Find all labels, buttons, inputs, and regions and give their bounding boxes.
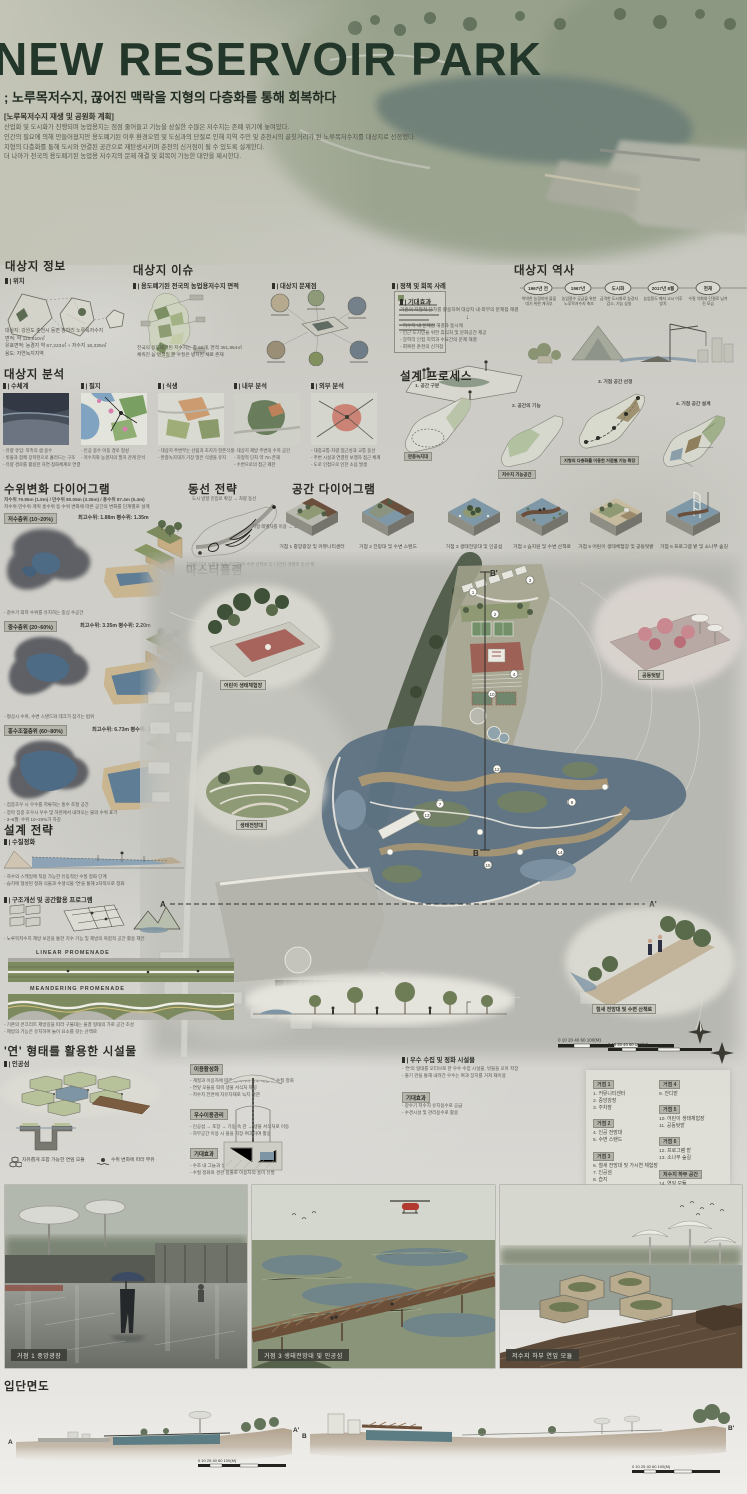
water-badge-1: 저수층위 (10~20%) (4, 513, 57, 524)
legend-item: 2. 중앙광장 (593, 1098, 651, 1105)
legend-item: 7. 인공섬 (593, 1170, 651, 1177)
svg-text:1: 1 (472, 590, 475, 595)
circulation-note-1: 도시 방향 진입로 확장 → 차량 동선 (192, 496, 256, 503)
svg-text:현재: 현재 (704, 285, 712, 292)
water-purification-bullets: - 하수의 스케일에 적용 가능한 유동적인 수질 정화 단계- 습지에 형성된… (4, 874, 194, 888)
history-caption: 척박한 농경지에 물을 대기 위한 계곡부 (520, 296, 558, 306)
project-type-label: [노루목저수지 재생 및 공원화 계획] (4, 111, 114, 122)
render-caption: 거점 1 중앙광장 (11, 1349, 67, 1361)
analysis-bullet: - 대상지 주변부는 산림과 초지가 현존식생 (158, 448, 232, 455)
legend-item: 3. 주차장 (593, 1105, 651, 1112)
svg-text:도시화: 도시화 (612, 285, 625, 292)
render-lotus-modules-photo: 저수지 하부 연잎 모듈 (500, 1185, 742, 1368)
purification-section-diagram (2, 845, 186, 871)
issue-note: 전국의 용도폐기된 저수지는 총 58개, 면적 361,864㎡ (137, 344, 267, 351)
water-summary: 저수위 79.85m (1.8m) / 만수위 80.05m (3.35m) /… (4, 496, 184, 503)
analysis-panel-parcel: | 필지 - 인공 용수 이동 경로 형성- 저수지와 농경지의 필지 관계 분… (81, 381, 155, 462)
site-info-details: 대상지: 강원도 춘천시 동면 장학리 노루목저수지면적: 약 115,610㎡… (5, 328, 130, 358)
analysis-bullet: - 빗물과 함께 장학천으로 흘러드는 구조 (3, 455, 77, 462)
expectation-intro: 기존의 지형적 단차를 활용하여 대상지 내·외부의 문제점 해결 (400, 306, 535, 313)
expectation-line: - 장학리 인접 지역과 수요간의 문제 해결 (400, 336, 540, 343)
rain-bullets: - '연'의 형태를 모티브로 한 우수 수집 시설물, 빗물을 모아 저장- … (402, 1066, 577, 1080)
strategy-bullet: - 습지에 형성된 정화 식물과 수생식물 '연'을 통해 2차적으로 정화 (4, 881, 194, 888)
island-section-diagram (16, 1120, 76, 1154)
legend-group-title: 거점 4 (659, 1080, 680, 1089)
legend-item: 8. 습지 (593, 1177, 651, 1184)
issue-note: 채워진 늪 면적일 뿐 수질은 방치된 채로 존재 (137, 351, 267, 358)
section-b-drawing: B B' 0 10 25 40 60 100(M) (302, 1392, 738, 1488)
section-analysis: 대상지 분석 (4, 366, 65, 382)
analysis-bullet: - 인공 용수 이동 경로 형성 (81, 448, 155, 455)
water-summary2: 저수위·만수위·계획 홍수위 등 수위 변화에 따른 공간의 변화를 단계별로 … (4, 503, 184, 510)
analysis-panel-external: | 외부 분석 - 대중교통·차량 접근성과 교통 동선- 주변 시설과 연결된… (311, 381, 385, 468)
legend-item: 11. 공동텃밭 (659, 1123, 717, 1130)
sub-expectation: | 기대효과 (405, 299, 432, 306)
island-module-axon (0, 1066, 172, 1118)
history-caption: 급격한 도시화로 농경지 감소, 기능 상실 (600, 296, 638, 306)
rain-effect-badge: 기대효과 (402, 1092, 430, 1103)
svg-text:0 10 20 40 60 1: 0 10 20 40 60 100(M) (608, 1042, 649, 1047)
meandering-promenade-label: MEANDERING PROMENADE (30, 986, 125, 992)
rain-collector-diagram: 0 10 20 40 60 100(M) (590, 1040, 740, 1068)
legend-item: 1. 커뮤니티센터 (593, 1091, 651, 1098)
section-lotus: '연' 형태를 활용한 시설물 (4, 1043, 137, 1059)
legend-group-title: 거점 1 (593, 1080, 614, 1089)
legend-group-title: 거점 2 (593, 1119, 614, 1128)
scale-strip: 0 10 20 40 60 100(M) (608, 1042, 712, 1051)
iso-caption-6: 거점 6 프로그램 밭 및 소나무 숲길 (652, 545, 736, 551)
svg-text:2017년 8월: 2017년 8월 (652, 285, 675, 292)
vignette-playground (190, 585, 330, 689)
section-strategy: 설계 전략 (4, 822, 54, 838)
site-info-line: 유효면적: 농경지 약 67,223㎡ + 저수지 18,335㎡ (5, 343, 130, 351)
process-badge: 지형의 다층화를 이용한 거점별 기능 확장 (560, 456, 639, 465)
iso-diagram-1 (284, 494, 340, 544)
svg-text:15: 15 (485, 863, 491, 868)
iso-caption-4: 거점 4 습지원 및 수변 산책로 (504, 545, 580, 551)
legend-group-title: 거점 3 (593, 1152, 614, 1161)
water-plan-1 (2, 524, 98, 610)
intro-line: 인간의 필요에 의해 만들어졌지만 용도폐기된 이후 환경오염 및 도심과의 단… (4, 133, 484, 143)
process-badge: 완충녹지대 (404, 452, 432, 461)
promenade-bullets: - 기존의 콘크리트 제방길을 따라 구불대는 물결 형태의 가로 공간 조성-… (4, 1022, 244, 1036)
strategy-bullet: - 노루목저수지 제방 보강을 통한 치수 기능 및 제방의 복합적 공간 활용… (4, 936, 239, 943)
legend-group-title: 저수지 하부 공간 (659, 1170, 702, 1179)
water-badge-3: 홍수조절층위 (60~80%) (4, 725, 67, 736)
svg-text:B: B (302, 1433, 307, 1440)
vignette-label: 철새 전망대 및 수변 산책로 (592, 1004, 656, 1014)
analysis-panel-internal: | 내부 분석 - 대상지 제방 주변의 수목 공간- 지형적 단차 약 7m … (234, 381, 308, 468)
render-wetland-photo: 거점 3 생태전망대 및 인공섬 (252, 1185, 495, 1368)
analysis-bullet: - 유량 경로를 활용한 자연 정화체계로 연결 (3, 462, 77, 469)
section-scale-bar: 0 10 25 40 60 100(M) (632, 1464, 720, 1473)
rain-bullet: - 줄기 관을 통해 내려간 우수는 여과 장치를 거쳐 재이용 (402, 1073, 577, 1080)
process-step-2 (496, 410, 578, 476)
rain-effect: - 갈수기 저수지 유지용수로 공급 (402, 1103, 577, 1110)
analysis-bullet: - 유량 유입: 북측의 샘 용수 (3, 448, 77, 455)
analysis-bullet: - 대중교통·차량 접근성과 교통 동선 (311, 448, 385, 455)
strategy-bullet: - 제방의 기능은 유지하며 놀이 요소를 갖는 산책로 (4, 1029, 244, 1036)
problem-diagram (258, 290, 376, 366)
vignette-label: 공동텃밭 (638, 670, 664, 680)
iso-caption-3: 거점 3 생태전망대 및 인공섬 (436, 545, 512, 551)
analysis-panel-water: | 수체계 - 유량 유입: 북측의 샘 용수- 빗물과 함께 장학천으로 흘러… (3, 381, 77, 468)
history-caption: 농업용수 공급을 위한 노루목저수지 축조 (560, 296, 598, 306)
legend-item: 9. 잔디밭 (659, 1091, 717, 1098)
page-title: NEW RESERVOIR PARK (0, 32, 542, 86)
render-plaza-photo: 거점 1 중앙광장 (5, 1185, 247, 1368)
umbrella-structure-diagram (218, 1062, 288, 1174)
legend-item: 10. 어린이 생태체험장 (659, 1116, 717, 1123)
expectation-line: - 저수지 내 문제점 해결과 동시에 (400, 322, 540, 329)
strategy-bullet: - 하수의 스케일에 적용 가능한 유동적인 수질 정화 단계 (4, 874, 194, 881)
site-info-line: 용도: 자연녹지지역 (5, 351, 130, 359)
render-caption: 거점 3 생태전망대 및 인공섬 (258, 1349, 349, 1361)
linear-promenade-label: LINEAR PROMENADE (36, 950, 110, 956)
module-icon-caption-2: 수위 변화에 따라 부유 (111, 1158, 155, 1164)
iso-caption-1: 거점 1 중앙광장 및 커뮤니티센터 (272, 545, 352, 551)
module-icon-1 (8, 1156, 22, 1168)
section-site-issue: 대상지 이슈 (133, 262, 194, 278)
iso-caption-2: 거점 2 전망대 및 수변 스탠드 (352, 545, 424, 551)
svg-text:1967년 전: 1967년 전 (528, 285, 548, 292)
meandering-promenade-strip (8, 994, 234, 1020)
svg-text:A: A (8, 1439, 13, 1446)
analysis-bullet: - 완충녹지대가 가장 많은 식생을 유지 (158, 455, 232, 462)
vignette-label: 생태전망대 (236, 820, 267, 830)
rain-effect: - 수경시설 및 관리용수로 활용 (402, 1110, 577, 1117)
water-plan-2 (2, 632, 98, 714)
process-badge: 저수지 기능공간 (498, 470, 536, 479)
sub-issue-problem: | 대상지 문제점 (277, 283, 317, 290)
intro-paragraph: 산업화 및 도시화가 진행되며 농업용지는 점점 줄어들고 기능을 상실한 수많… (4, 123, 484, 162)
section-a-drawing: A A' 0 10 25 40 60 100(M) (8, 1392, 300, 1478)
history-caption: 농업용도 폐지 고시 이후 방치 (642, 296, 684, 306)
subtitle: ; 노루목저수지, 끊어진 맥락을 지형의 다층화를 통해 회복하다 (4, 87, 336, 106)
svg-text:8: 8 (571, 800, 574, 805)
module-icon-2 (96, 1156, 110, 1168)
rain-effects: - 갈수기 저수지 유지용수로 공급- 수경시설 및 관리용수로 활용 (402, 1103, 577, 1117)
legend-group-title: 거점 6 (659, 1137, 680, 1146)
expectation-line: - 인근 도시민을 위한 휴식처 및 문화공간 제공 (400, 329, 540, 336)
svg-text:B': B' (490, 569, 498, 578)
svg-text:14: 14 (557, 850, 563, 855)
svg-text:12: 12 (494, 767, 500, 772)
street-section-vignette (245, 968, 515, 1028)
iso-diagram-5 (588, 494, 644, 544)
svg-text:3: 3 (529, 578, 532, 583)
process-step-label: 3. 거점 공간 선정 (598, 380, 632, 386)
analysis-panel-vegetation: | 식생 - 대상지 주변부는 산림과 초지가 현존식생- 완충녹지대가 가장 … (158, 381, 232, 462)
module-icon-caption-1: 자유롭게 조합 가능한 연잎 모듈 (22, 1158, 85, 1164)
legend-item: 4. 인공 전망대 (593, 1130, 651, 1137)
linear-promenade-strip (8, 958, 234, 982)
iso-diagram-3 (446, 494, 502, 544)
circle-lawn (470, 708, 486, 724)
process-step-4 (658, 410, 740, 476)
svg-text:10: 10 (489, 692, 495, 697)
structure-sketches (2, 903, 186, 935)
structure-bullets: - 노루목저수지 제방 보강을 통한 치수 기능 및 제방의 복합적 공간 활용… (4, 936, 239, 943)
svg-text:13: 13 (424, 813, 430, 818)
svg-text:1967년: 1967년 (571, 285, 585, 292)
process-step-3 (576, 388, 658, 458)
svg-text:B: B (473, 849, 479, 858)
legend-item: 12. 프로그램 밭 (659, 1148, 717, 1155)
analysis-bullet: - 저수지와 농경지의 필지 관계 분석 (81, 455, 155, 462)
iso-caption-5: 거점 5 어린이 생태체험장 및 공동텃밭 (576, 545, 656, 551)
expectation-line: - 회복된 춘천의 신거점 (400, 343, 540, 350)
svg-text:0 10 25 40 60 100(M): 0 10 25 40 60 100(M) (632, 1464, 671, 1469)
rain-bullet: - '연'의 형태를 모티브로 한 우수 수집 시설물, 빗물을 모아 저장 (402, 1066, 577, 1073)
vignette-bird-path (565, 907, 735, 1017)
svg-text:7: 7 (439, 802, 442, 807)
section-water-level: 수위변화 다이어그램 (4, 481, 110, 497)
intro-line: 더 나아가 전국의 용도폐기된 농업용 저수지의 문제 해결 및 회복이 가능한… (4, 152, 484, 162)
section-site-info: 대상지 정보 (5, 258, 66, 274)
analysis-bullet: - 수변으로의 접근 제한 (234, 462, 308, 469)
water-badge-2: 중수층위 (20~60%) (4, 621, 57, 632)
svg-text:B': B' (728, 1425, 735, 1432)
analysis-bullet: - 대상지 제방 주변의 수목 공간 (234, 448, 308, 455)
svg-text:4: 4 (513, 672, 516, 677)
legend-group-title: 거점 5 (659, 1105, 680, 1114)
render-caption: 저수지 하부 연잎 모듈 (506, 1349, 579, 1361)
svg-text:0 10 25 40 60 100(M): 0 10 25 40 60 100(M) (198, 1458, 237, 1463)
analysis-bullet: - 지형적 단차 약 7m 존재 (234, 455, 308, 462)
lotus-badge: 기대효과 (190, 1148, 218, 1159)
sub-issue-map: | 용도폐기된 전국의 농업용저수지 면적 (138, 283, 239, 290)
sub-rain-facility: | 우수 수집 및 정화 시설물 (407, 1057, 475, 1064)
site-info-line: 면적: 약 115,610㎡ (5, 336, 130, 344)
legend-item: 6. 철새 전망대 및 가시연 체험장 (593, 1163, 651, 1170)
vignette-garden (593, 576, 743, 688)
process-step-label: 4. 거점 공간 설계 (676, 402, 710, 408)
svg-text:2: 2 (494, 612, 497, 617)
iso-diagram-2 (360, 494, 416, 544)
legend-item: 13. 소나무 숲길 (659, 1155, 717, 1162)
legend-item: 5. 수변 스탠드 (593, 1137, 651, 1144)
process-step-label: 1. 공간 구분 (415, 384, 439, 390)
intro-line: 지형의 다층화를 통해 도시와 연결된 공간으로 재탄생시키며 춘천의 신거점이… (4, 143, 484, 153)
section-history: 대상지 역사 (514, 262, 575, 278)
iso-diagram-6 (664, 490, 722, 544)
section-circulation: 동선 전략 (188, 481, 238, 497)
issue-map-notes: 전국의 용도폐기된 저수지는 총 58개, 면적 361,864㎡채워진 늪 면… (137, 344, 267, 359)
strategy-bullet: - 기존의 콘크리트 제방길을 따라 구불대는 물결 형태의 가로 공간 조성 (4, 1022, 244, 1029)
site-info-line: 대상지: 강원도 춘천시 동면 장학리 노루목저수지 (5, 328, 130, 336)
vignette-label: 어린이 생태체험장 (220, 680, 266, 690)
competition-board: NEW RESERVOIR PARK ; 노루목저수지, 끊어진 맥락을 지형의… (0, 0, 747, 1494)
analysis-bullet: - 도로 인접으로 인한 소음 발생 (311, 462, 385, 469)
svg-text:A': A' (293, 1427, 300, 1434)
masterplan-legend: 거점 1 1. 커뮤니티센터2. 중앙광장3. 주차장 거점 2 4. 인공 전… (586, 1070, 730, 1186)
section-process: 설계 프로세스 (400, 368, 472, 384)
iso-diagram-4 (514, 494, 570, 544)
history-illustration (520, 316, 740, 366)
expectation-bullets: - 저수지 내 문제점 해결과 동시에- 인근 도시민을 위한 휴식처 및 문화… (400, 322, 540, 350)
intro-line: 산업화 및 도시화가 진행되며 농업용지는 점점 줄어들고 기능을 상실한 수많… (4, 123, 484, 133)
sub-issue-policy: | 정책 및 회복 사례 (397, 283, 446, 290)
history-caption: 수질 악화와 단절로 남겨진 모습 (688, 296, 728, 306)
analysis-bullet: - 주변 시설과 연결된 보행자 접근 체계 (311, 455, 385, 462)
